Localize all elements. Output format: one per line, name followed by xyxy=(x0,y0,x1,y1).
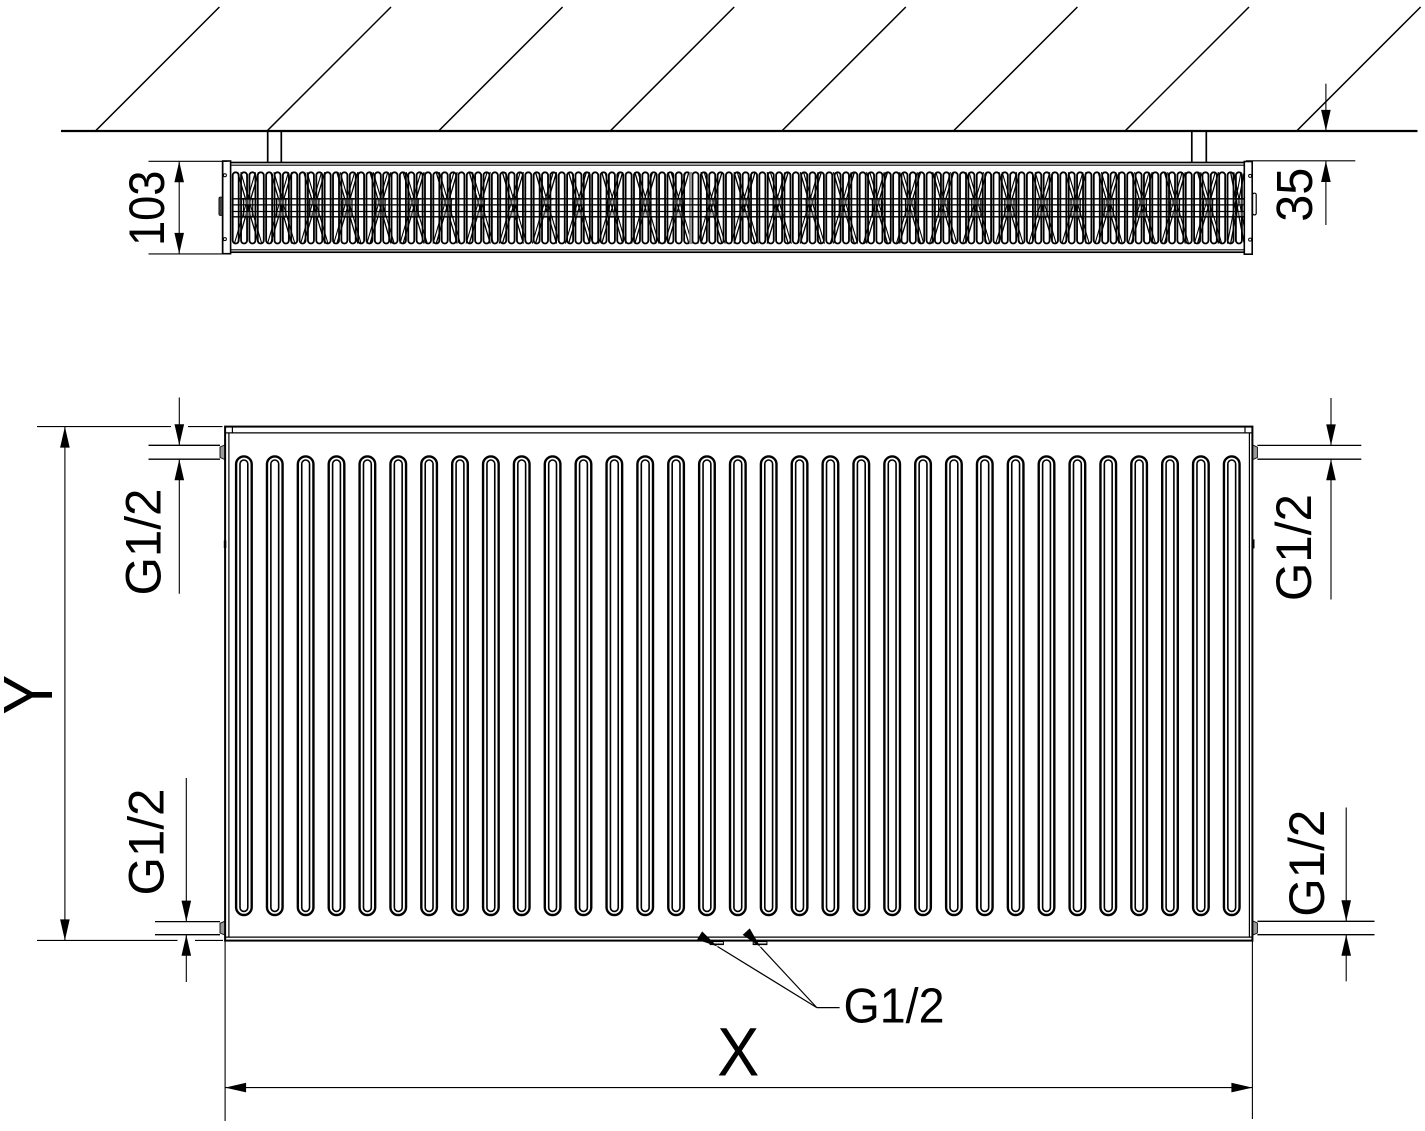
svg-text:G1/2: G1/2 xyxy=(119,789,175,896)
svg-text:Y: Y xyxy=(0,675,67,715)
svg-text:G1/2: G1/2 xyxy=(1279,810,1335,917)
svg-text:X: X xyxy=(717,1014,759,1090)
svg-text:G1/2: G1/2 xyxy=(844,980,945,1034)
svg-text:35: 35 xyxy=(1266,168,1323,222)
svg-text:G1/2: G1/2 xyxy=(115,489,171,596)
svg-text:103: 103 xyxy=(119,171,175,247)
svg-text:G1/2: G1/2 xyxy=(1266,494,1322,601)
